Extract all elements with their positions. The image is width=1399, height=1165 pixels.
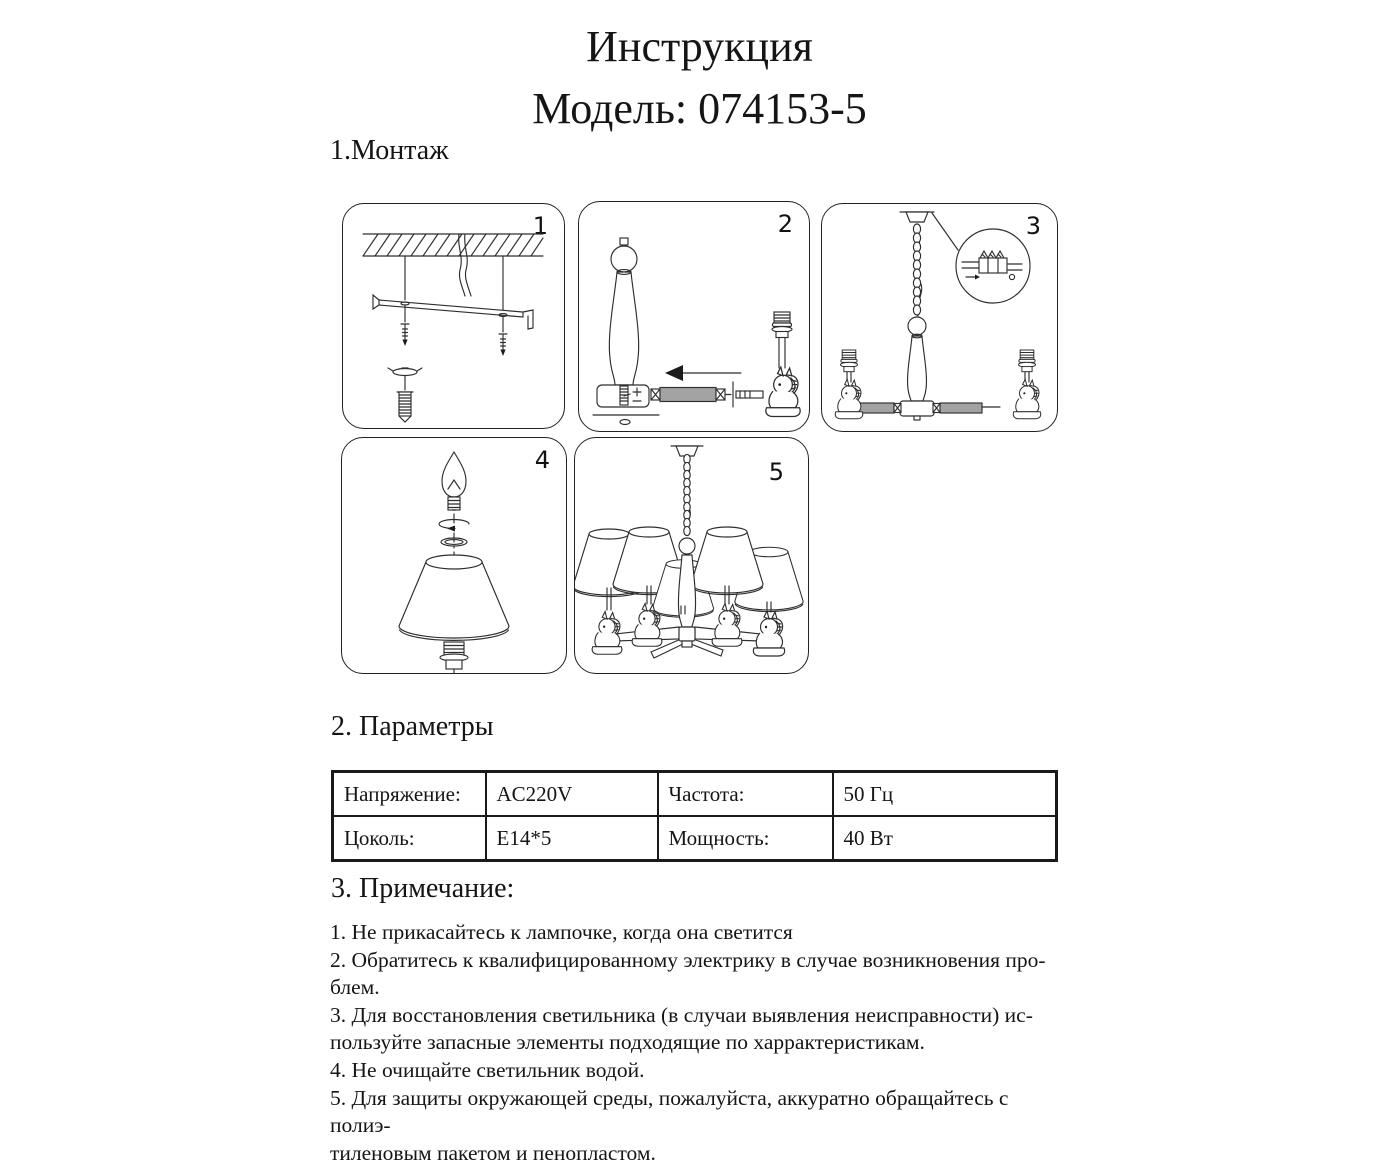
note-item-5: 5. Для защиты окружающей среды, пожалуйс…: [330, 1085, 1062, 1165]
param-value-socket: E14*5: [486, 816, 658, 861]
note-item-3: 3. Для восстановления светильника (в слу…: [330, 1002, 1062, 1057]
montage-step-5-panel: 5: [574, 437, 809, 674]
param-label-frequency: Частота:: [658, 772, 833, 817]
param-value-voltage: AC220V: [486, 772, 658, 817]
montage-step-2-panel: 2: [578, 201, 810, 432]
instruction-sheet: Инструкция Модель: 074153-5 1.Монтаж 1 2: [0, 0, 1399, 1165]
notes-list: 1. Не прикасайтесь к лампочке, когда она…: [330, 919, 1062, 1165]
param-value-power: 40 Вт: [833, 816, 1057, 861]
diagram-ceiling-bracket: [343, 204, 564, 428]
parameters-heading: 2. Параметры: [331, 712, 494, 742]
page-title-line1: Инструкция: [0, 16, 1399, 78]
montage-step-3-panel: 3: [821, 203, 1058, 432]
table-row: Напряжение: AC220V Частота: 50 Гц: [333, 772, 1057, 817]
param-value-frequency: 50 Гц: [833, 772, 1057, 817]
param-label-voltage: Напряжение:: [333, 772, 486, 817]
note-item-4: 4. Не очищайте светильник водой.: [330, 1057, 1062, 1085]
param-label-power: Мощность:: [658, 816, 833, 861]
notes-heading: 3. Примечание:: [331, 874, 514, 904]
montage-step-4-panel: 4: [341, 437, 567, 674]
page-title-line2: Модель: 074153-5: [0, 78, 1399, 140]
param-label-socket: Цоколь:: [333, 816, 486, 861]
diagram-bulb-shade: [342, 438, 566, 673]
note-item-1: 1. Не прикасайтесь к лампочке, когда она…: [330, 919, 1062, 947]
diagram-hanging-frame: [822, 204, 1057, 431]
montage-step-1-panel: 1: [342, 203, 565, 429]
diagram-arm-assembly: [579, 202, 809, 431]
montage-heading: 1.Монтаж: [330, 136, 449, 166]
table-row: Цоколь: E14*5 Мощность: 40 Вт: [333, 816, 1057, 861]
note-item-2: 2. Обратитесь к квалифицированному элект…: [330, 947, 1062, 1002]
diagram-complete-chandelier: [575, 438, 808, 673]
parameters-table: Напряжение: AC220V Частота: 50 Гц Цоколь…: [331, 770, 1058, 862]
page-title: Инструкция Модель: 074153-5: [0, 16, 1399, 140]
